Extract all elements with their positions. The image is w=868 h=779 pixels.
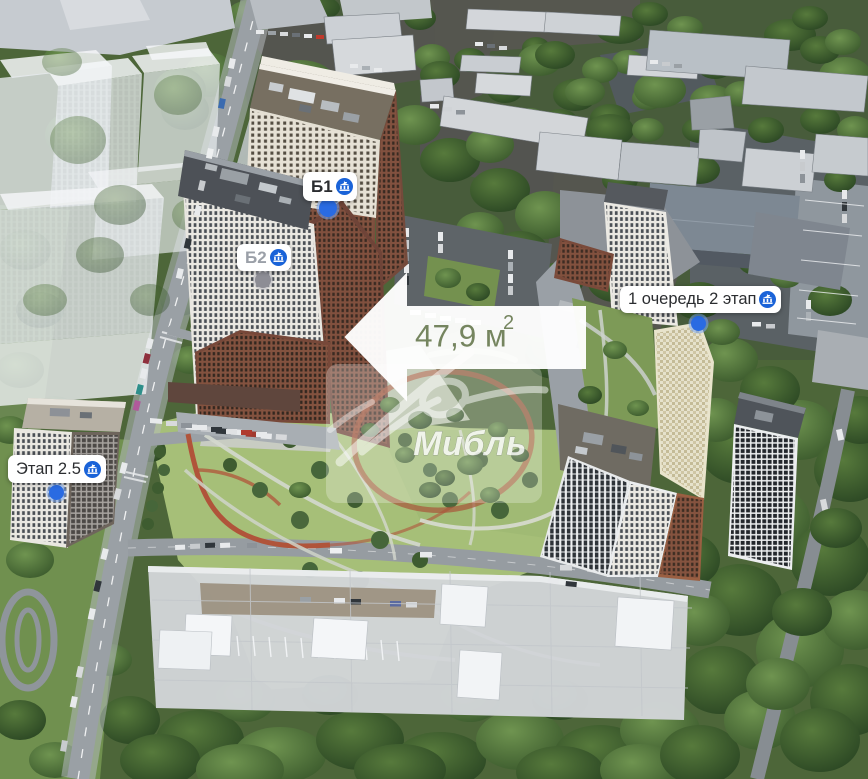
svg-text:Мибль: Мибль xyxy=(413,425,527,463)
svg-text:2: 2 xyxy=(503,312,514,334)
svg-text:47,9 м: 47,9 м xyxy=(415,318,507,354)
